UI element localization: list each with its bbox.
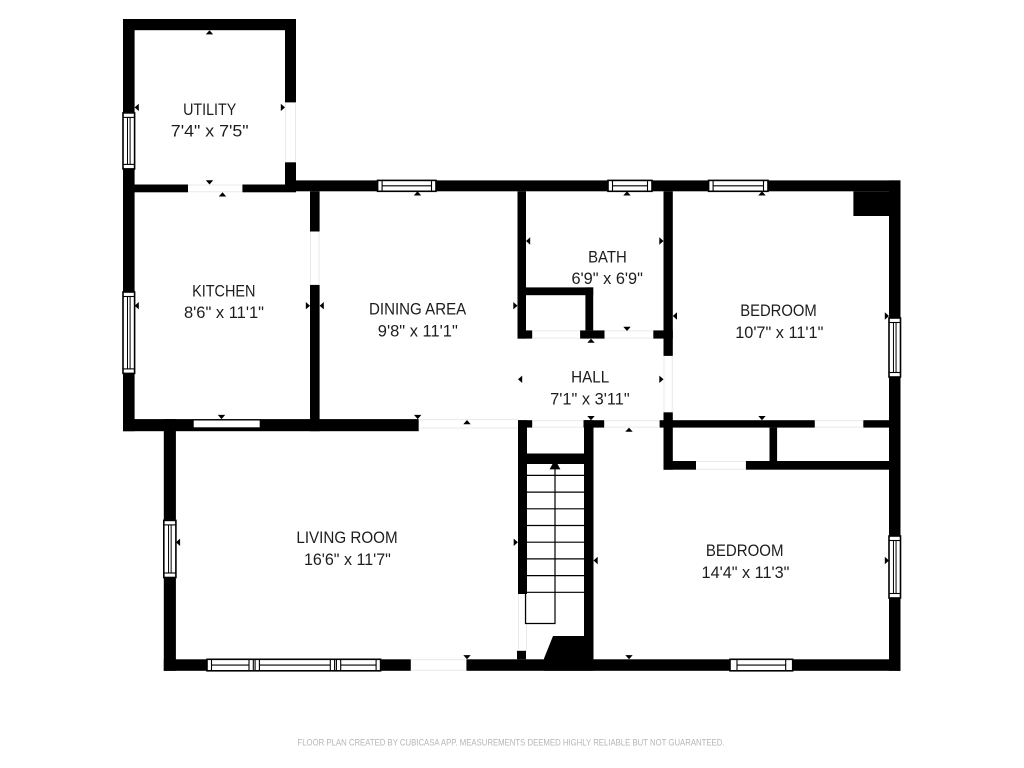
svg-text:BEDROOM: BEDROOM [706,542,784,560]
svg-text:9'8" x 11'1": 9'8" x 11'1" [378,322,458,340]
svg-text:7'4" x 7'5": 7'4" x 7'5" [171,123,249,141]
svg-text:LIVING ROOM: LIVING ROOM [296,529,397,547]
svg-text:BEDROOM: BEDROOM [740,302,817,320]
svg-text:6'9" x 6'9": 6'9" x 6'9" [571,270,643,288]
svg-text:UTILITY: UTILITY [183,101,236,119]
svg-text:16'6" x 11'7": 16'6" x 11'7" [304,551,391,569]
svg-text:14'4" x 11'3": 14'4" x 11'3" [702,564,790,582]
svg-text:BATH: BATH [588,248,627,266]
svg-text:FLOOR PLAN CREATED BY CUBICASA: FLOOR PLAN CREATED BY CUBICASA APP. MEAS… [298,738,725,748]
svg-text:8'6" x 11'1": 8'6" x 11'1" [184,304,264,322]
svg-text:DINING AREA: DINING AREA [369,301,466,319]
svg-text:KITCHEN: KITCHEN [192,283,255,301]
svg-text:7'1" x 3'11": 7'1" x 3'11" [550,390,630,408]
svg-text:10'7" x 11'1": 10'7" x 11'1" [735,324,823,342]
svg-text:HALL: HALL [571,369,609,387]
